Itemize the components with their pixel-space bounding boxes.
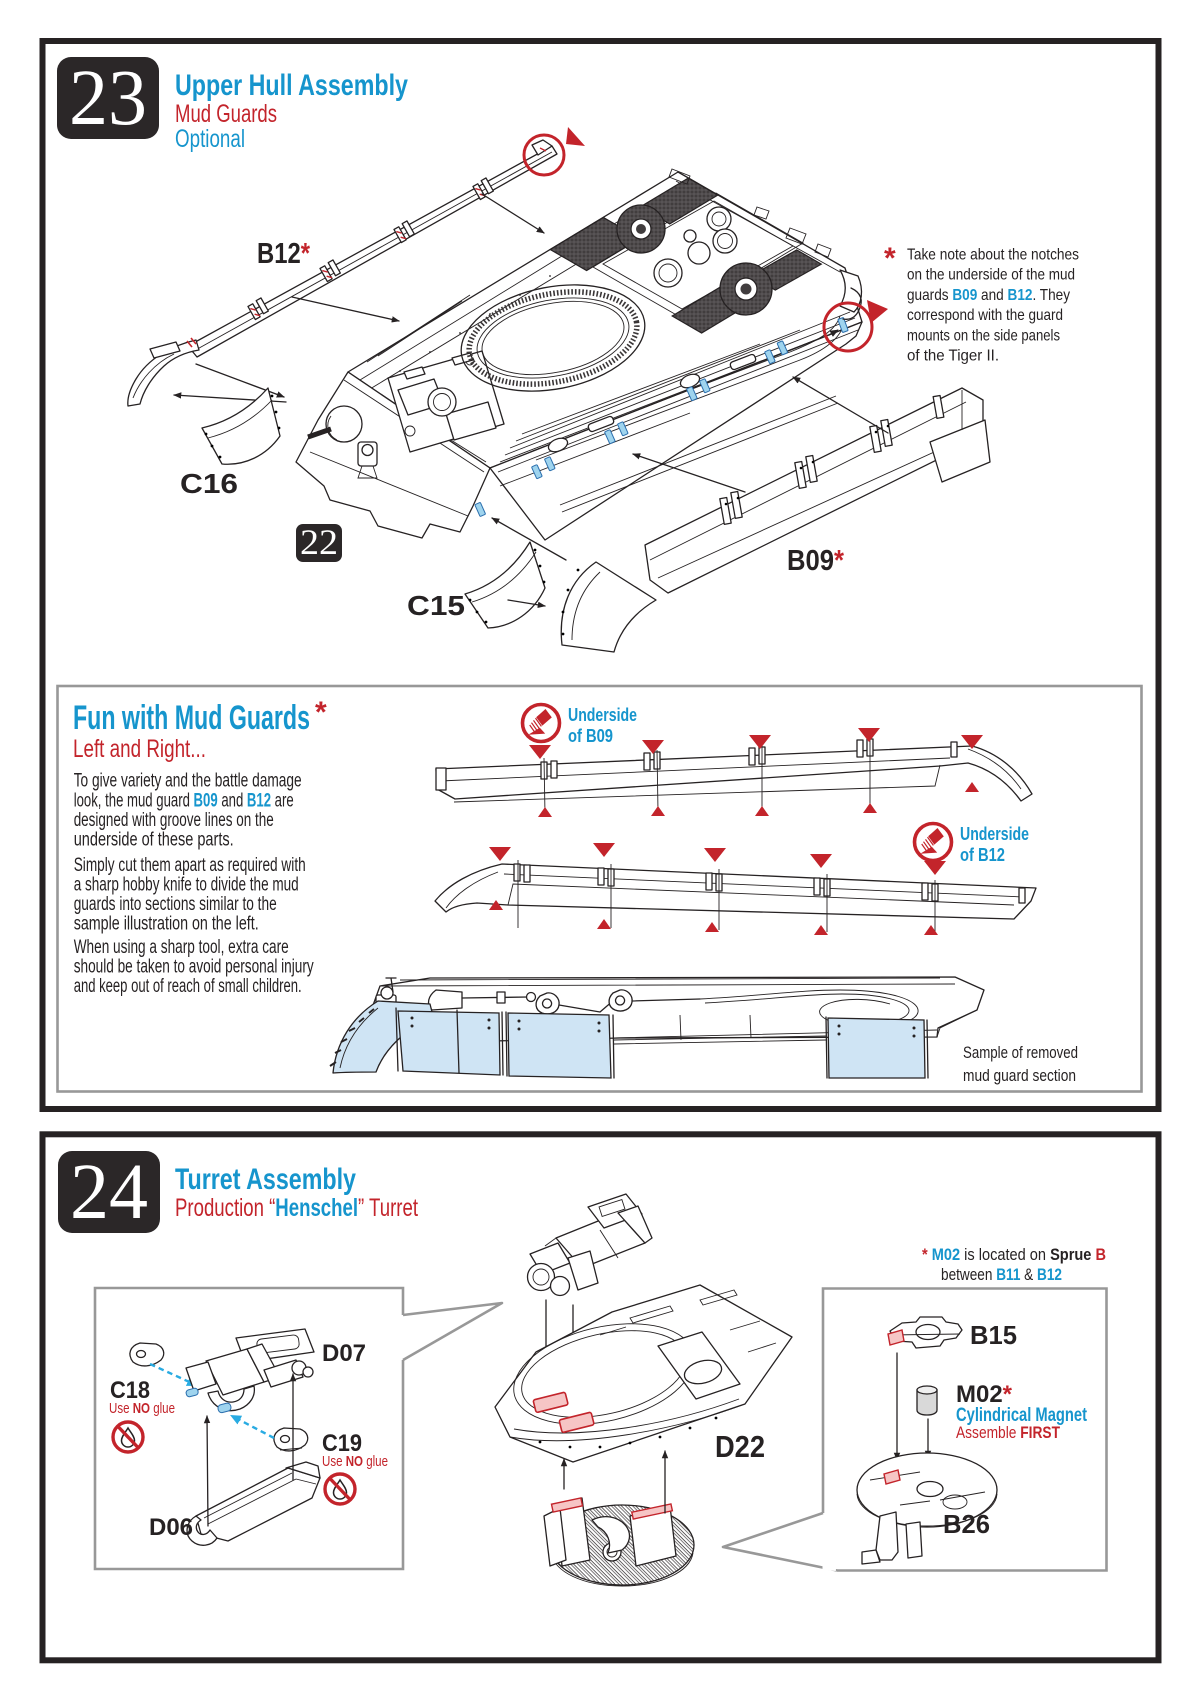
svg-text:Simply cut them apart as requi: Simply cut them apart as required with bbox=[74, 855, 306, 876]
svg-text:D22: D22 bbox=[715, 1429, 765, 1464]
svg-text:Sample of removed: Sample of removed bbox=[963, 1043, 1078, 1062]
svg-text:D07: D07 bbox=[322, 1340, 366, 1367]
svg-text:of B12: of B12 bbox=[960, 845, 1005, 865]
svg-text:22: 22 bbox=[300, 522, 338, 562]
svg-text:Use NO glue: Use NO glue bbox=[322, 1453, 388, 1470]
svg-text:Production “Henschel” Turret: Production “Henschel” Turret bbox=[175, 1194, 418, 1222]
svg-text:guards into sections similar t: guards into sections similar to the bbox=[74, 894, 277, 915]
svg-text:Turret Assembly: Turret Assembly bbox=[175, 1163, 356, 1196]
svg-text:should be taken to avoid perso: should be taken to avoid personal injury bbox=[74, 957, 314, 978]
svg-text:and keep out of reach of small: and keep out of reach of small children. bbox=[74, 976, 302, 997]
svg-text:B26: B26 bbox=[943, 1509, 990, 1539]
svg-text:Take note about the notches: Take note about the notches bbox=[907, 247, 1079, 264]
svg-text:B12*: B12* bbox=[257, 238, 311, 270]
svg-text:Optional: Optional bbox=[175, 125, 245, 153]
svg-text:designed with groove lines on: designed with groove lines on the bbox=[74, 810, 274, 831]
svg-text:underside of these parts.: underside of these parts. bbox=[74, 830, 234, 851]
svg-text:Mud Guards: Mud Guards bbox=[175, 100, 277, 128]
svg-text:C15: C15 bbox=[407, 590, 465, 621]
svg-text:24: 24 bbox=[70, 1149, 148, 1236]
svg-text:correspond with the guard: correspond with the guard bbox=[907, 307, 1063, 324]
svg-text:*: * bbox=[884, 242, 896, 275]
svg-text:Underside: Underside bbox=[568, 705, 637, 725]
svg-text:Underside: Underside bbox=[960, 824, 1029, 844]
svg-text:of B09: of B09 bbox=[568, 726, 613, 746]
svg-text:guards B09 and B12. They: guards B09 and B12. They bbox=[907, 287, 1070, 304]
svg-text:C16: C16 bbox=[180, 468, 238, 499]
svg-text:of the Tiger II.: of the Tiger II. bbox=[907, 348, 999, 365]
svg-text:look, the mud guard B09 and B1: look, the mud guard B09 and B12 are bbox=[74, 790, 294, 811]
svg-text:on the underside of the mud: on the underside of the mud bbox=[907, 267, 1075, 284]
svg-text:To give variety and the battle: To give variety and the battle damage bbox=[74, 771, 302, 792]
svg-text:Fun with Mud Guards: Fun with Mud Guards bbox=[73, 699, 310, 737]
svg-text:23: 23 bbox=[69, 55, 147, 142]
svg-text:sample illustration on the lef: sample illustration on the left. bbox=[74, 914, 259, 935]
svg-text:between B11 & B12: between B11 & B12 bbox=[941, 1266, 1062, 1284]
svg-text:mounts on the side panels: mounts on the side panels bbox=[907, 327, 1060, 344]
svg-text:When using a sharp tool, extra: When using a sharp tool, extra care bbox=[74, 937, 289, 958]
svg-text:D06: D06 bbox=[149, 1514, 193, 1541]
svg-text:mud guard section: mud guard section bbox=[963, 1066, 1076, 1085]
svg-text:a sharp hobby knife to divide: a sharp hobby knife to divide the mud bbox=[74, 874, 299, 895]
svg-text:Use NO glue: Use NO glue bbox=[109, 1400, 175, 1417]
svg-text:*: * bbox=[315, 696, 327, 729]
svg-text:Left and Right...: Left and Right... bbox=[73, 735, 206, 763]
svg-text:Upper Hull Assembly: Upper Hull Assembly bbox=[175, 69, 408, 102]
svg-text:B09*: B09* bbox=[787, 545, 845, 577]
svg-text:B15: B15 bbox=[970, 1320, 1017, 1350]
svg-text:M02*: M02* bbox=[956, 1381, 1013, 1408]
svg-text:* M02 is located on Sprue B: * M02 is located on Sprue B bbox=[922, 1246, 1106, 1264]
svg-text:Assemble FIRST: Assemble FIRST bbox=[956, 1423, 1060, 1442]
